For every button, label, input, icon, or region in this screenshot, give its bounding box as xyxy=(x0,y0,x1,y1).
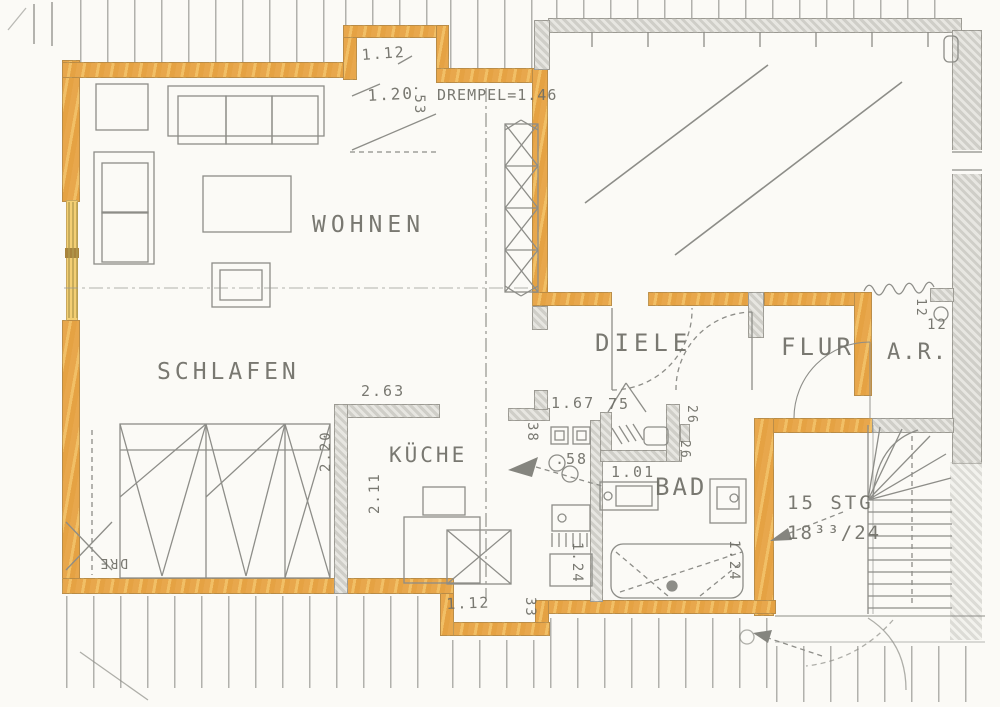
dim-dre-cutoff: DRE xyxy=(99,555,128,570)
wohnen-furniture xyxy=(94,84,324,307)
section-dash-dot-lines xyxy=(64,88,530,598)
dim-26a: 26 xyxy=(684,405,699,425)
dim-26b: 26 xyxy=(677,440,692,460)
dim-220: 2.20 xyxy=(318,430,334,472)
stair-label-rise-run: 18³³/24 xyxy=(787,522,881,544)
room-label-kueche: KÜCHE xyxy=(389,443,467,467)
shaft-cross-hatch xyxy=(505,120,538,296)
top-wall-ticks xyxy=(592,32,928,47)
room-label-wohnen: WOHNEN xyxy=(312,212,425,238)
dim-dormer-width: 1.12 xyxy=(361,43,406,64)
wc-fixtures xyxy=(608,383,668,445)
dim-38: 38 xyxy=(524,422,540,443)
ar-insulation-squiggle xyxy=(864,282,948,321)
dim-dormer-depth: 1.20 xyxy=(367,84,414,105)
neighbor-room-diagonals xyxy=(585,65,902,255)
staircase xyxy=(770,425,952,614)
left-window-glazing xyxy=(69,202,77,318)
dim-211: 2.11 xyxy=(367,472,383,514)
room-label-diele: DIELE xyxy=(595,329,692,357)
dim-58: .58 xyxy=(555,450,588,468)
dim-33: 33 xyxy=(522,597,538,618)
dim-bottom-bump-width: 1.12 xyxy=(446,593,491,613)
dim-75: 75 xyxy=(608,395,630,413)
understair-lines xyxy=(740,616,985,690)
dim-drempel: DREMPEL=1.46 xyxy=(437,86,557,104)
dim-167: 1.67 xyxy=(551,394,595,412)
room-label-flur: FLUR xyxy=(781,333,855,361)
stair-label-steps: 15 STG xyxy=(787,492,874,514)
right-wall-window-lines xyxy=(952,152,982,170)
dim-12b: 12 xyxy=(927,317,948,333)
door-swings xyxy=(612,308,870,418)
dim-101: 1.01 xyxy=(611,463,655,481)
misc-pencil-marks xyxy=(8,2,148,700)
dim-12a: 12 xyxy=(913,298,928,318)
chimney-flue-icon xyxy=(944,36,958,62)
room-label-ar: A.R. xyxy=(887,340,948,365)
dim-263: 2.63 xyxy=(361,382,405,400)
floor-plan-canvas: WOHNEN SCHLAFEN KÜCHE DIELE FLUR A.R. BA… xyxy=(0,0,1000,707)
dim-124a: 1.24 xyxy=(569,542,585,584)
room-label-bad: BAD xyxy=(655,473,707,501)
room-label-schlafen: SCHLAFEN xyxy=(157,359,300,385)
dim-124b: 1.24 xyxy=(726,540,742,582)
